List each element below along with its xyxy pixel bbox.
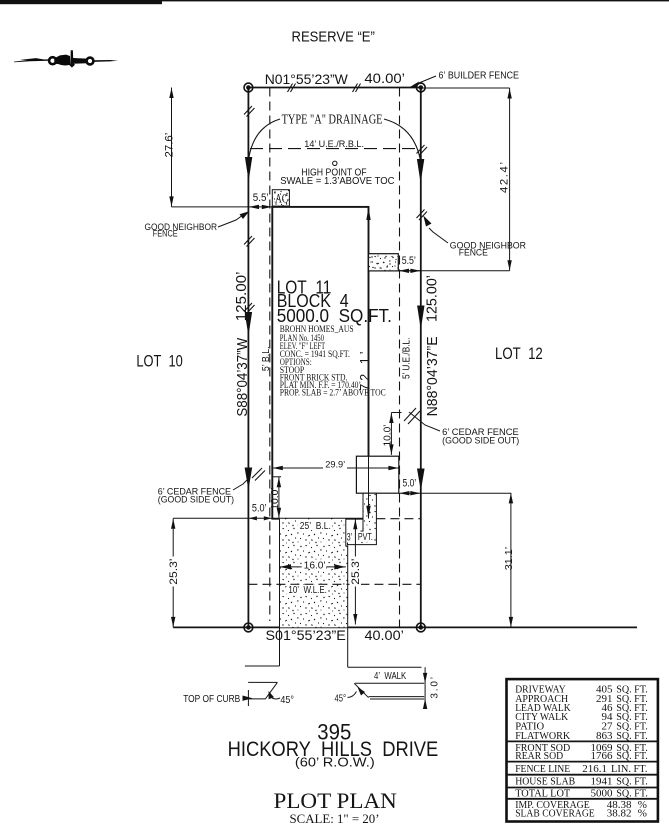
svg-text:1766: 1766 <box>591 750 614 762</box>
svg-text:FENCE LINE: FENCE LINE <box>515 763 570 775</box>
svg-text:29.9’: 29.9’ <box>325 460 345 471</box>
svg-text:5’ B.L.: 5’ B.L. <box>260 346 272 371</box>
svg-text:SQ. FT.: SQ. FT. <box>616 750 648 762</box>
svg-text:3’: 3’ <box>347 532 352 544</box>
svg-text:5’ U.E./B.L.: 5’ U.E./B.L. <box>402 338 413 379</box>
svg-text:S01°55’23”E: S01°55’23”E <box>266 628 346 644</box>
svg-text:PROP. SLAB = 2.7’ ABOVE TOC: PROP. SLAB = 2.7’ ABOVE TOC <box>280 387 386 397</box>
svg-text:SWALE = 1.3’ABOVE TOC: SWALE = 1.3’ABOVE TOC <box>280 176 394 187</box>
svg-text:SQ. FT.: SQ. FT. <box>616 730 648 742</box>
svg-text:(GOOD SIDE OUT): (GOOD SIDE OUT) <box>158 495 234 505</box>
svg-text:TYPE "A" DRAINAGE: TYPE "A" DRAINAGE <box>282 112 383 127</box>
svg-text:45°: 45° <box>335 693 347 704</box>
svg-text:SCALE: 1" = 20’: SCALE: 1" = 20’ <box>290 812 380 826</box>
svg-text:FENCE: FENCE <box>459 247 488 257</box>
svg-text:125.00’: 125.00’ <box>423 275 440 322</box>
svg-text:TOTAL LOT: TOTAL LOT <box>515 787 570 799</box>
svg-text:5.5’: 5.5’ <box>253 192 269 204</box>
svg-text:LOT 12: LOT 12 <box>495 345 543 363</box>
svg-text:SQ. FT.: SQ. FT. <box>616 787 648 799</box>
svg-text:31.1’: 31.1’ <box>503 547 515 570</box>
svg-text:42.4’: 42.4’ <box>498 162 510 193</box>
svg-text:4’ WALK: 4’ WALK <box>374 671 407 682</box>
svg-text:40.00’: 40.00’ <box>364 71 405 87</box>
svg-text:10.0’: 10.0’ <box>269 487 281 509</box>
svg-text:14’ U.E./R.B.L.: 14’ U.E./R.B.L. <box>304 139 364 149</box>
svg-text:PLOT PLAN: PLOT PLAN <box>274 788 397 813</box>
svg-text:(GOOD SIDE OUT): (GOOD SIDE OUT) <box>442 436 519 446</box>
svg-text:N01°55’23”W: N01°55’23”W <box>265 72 349 88</box>
svg-text:27.6’: 27.6’ <box>164 133 176 158</box>
svg-text:TOP OF CURB: TOP OF CURB <box>183 694 240 705</box>
svg-text:25.3’: 25.3’ <box>168 559 180 585</box>
svg-text:RESERVE “E”: RESERVE “E” <box>292 29 375 45</box>
svg-text:5000: 5000 <box>591 787 614 799</box>
svg-text:S88°04’37”W: S88°04’37”W <box>234 337 251 417</box>
svg-text:FLATWORK: FLATWORK <box>515 730 570 742</box>
svg-text:10’ W.L.E.: 10’ W.L.E. <box>288 585 327 596</box>
svg-text:LOT 10: LOT 10 <box>136 353 182 371</box>
svg-text:216.1: 216.1 <box>582 763 607 775</box>
svg-text:25.3’: 25.3’ <box>350 559 362 585</box>
svg-text:16.0’: 16.0’ <box>304 560 326 571</box>
svg-text:5.0’: 5.0’ <box>403 477 417 489</box>
svg-text:LIN. FT.: LIN. FT. <box>611 763 648 775</box>
svg-text:%: % <box>638 808 647 820</box>
svg-text:REAR SOD: REAR SOD <box>515 750 563 762</box>
svg-text:25’ B.L.: 25’ B.L. <box>300 521 331 532</box>
svg-text:6’ BUILDER FENCE: 6’ BUILDER FENCE <box>439 71 520 82</box>
svg-text:FENCE: FENCE <box>153 229 178 239</box>
svg-text:5.5’: 5.5’ <box>402 255 416 267</box>
svg-text:SQ. FT.: SQ. FT. <box>616 775 648 787</box>
svg-text:45°: 45° <box>280 695 294 706</box>
svg-text:HOUSE SLAB: HOUSE SLAB <box>515 775 575 787</box>
svg-text:38.82: 38.82 <box>607 808 632 820</box>
svg-text:N88°04’37”E: N88°04’37”E <box>424 336 441 416</box>
svg-text:10.0’: 10.0’ <box>382 425 394 447</box>
svg-text:863: 863 <box>596 730 613 742</box>
svg-text:(60’ R.O.W.): (60’ R.O.W.) <box>295 754 375 769</box>
svg-text:5.0’: 5.0’ <box>252 503 267 515</box>
svg-text:PVT.: PVT. <box>358 532 373 543</box>
svg-text:SLAB COVERAGE: SLAB COVERAGE <box>515 808 595 820</box>
svg-text:40.00’: 40.00’ <box>365 628 404 644</box>
svg-text:1941: 1941 <box>591 775 613 787</box>
